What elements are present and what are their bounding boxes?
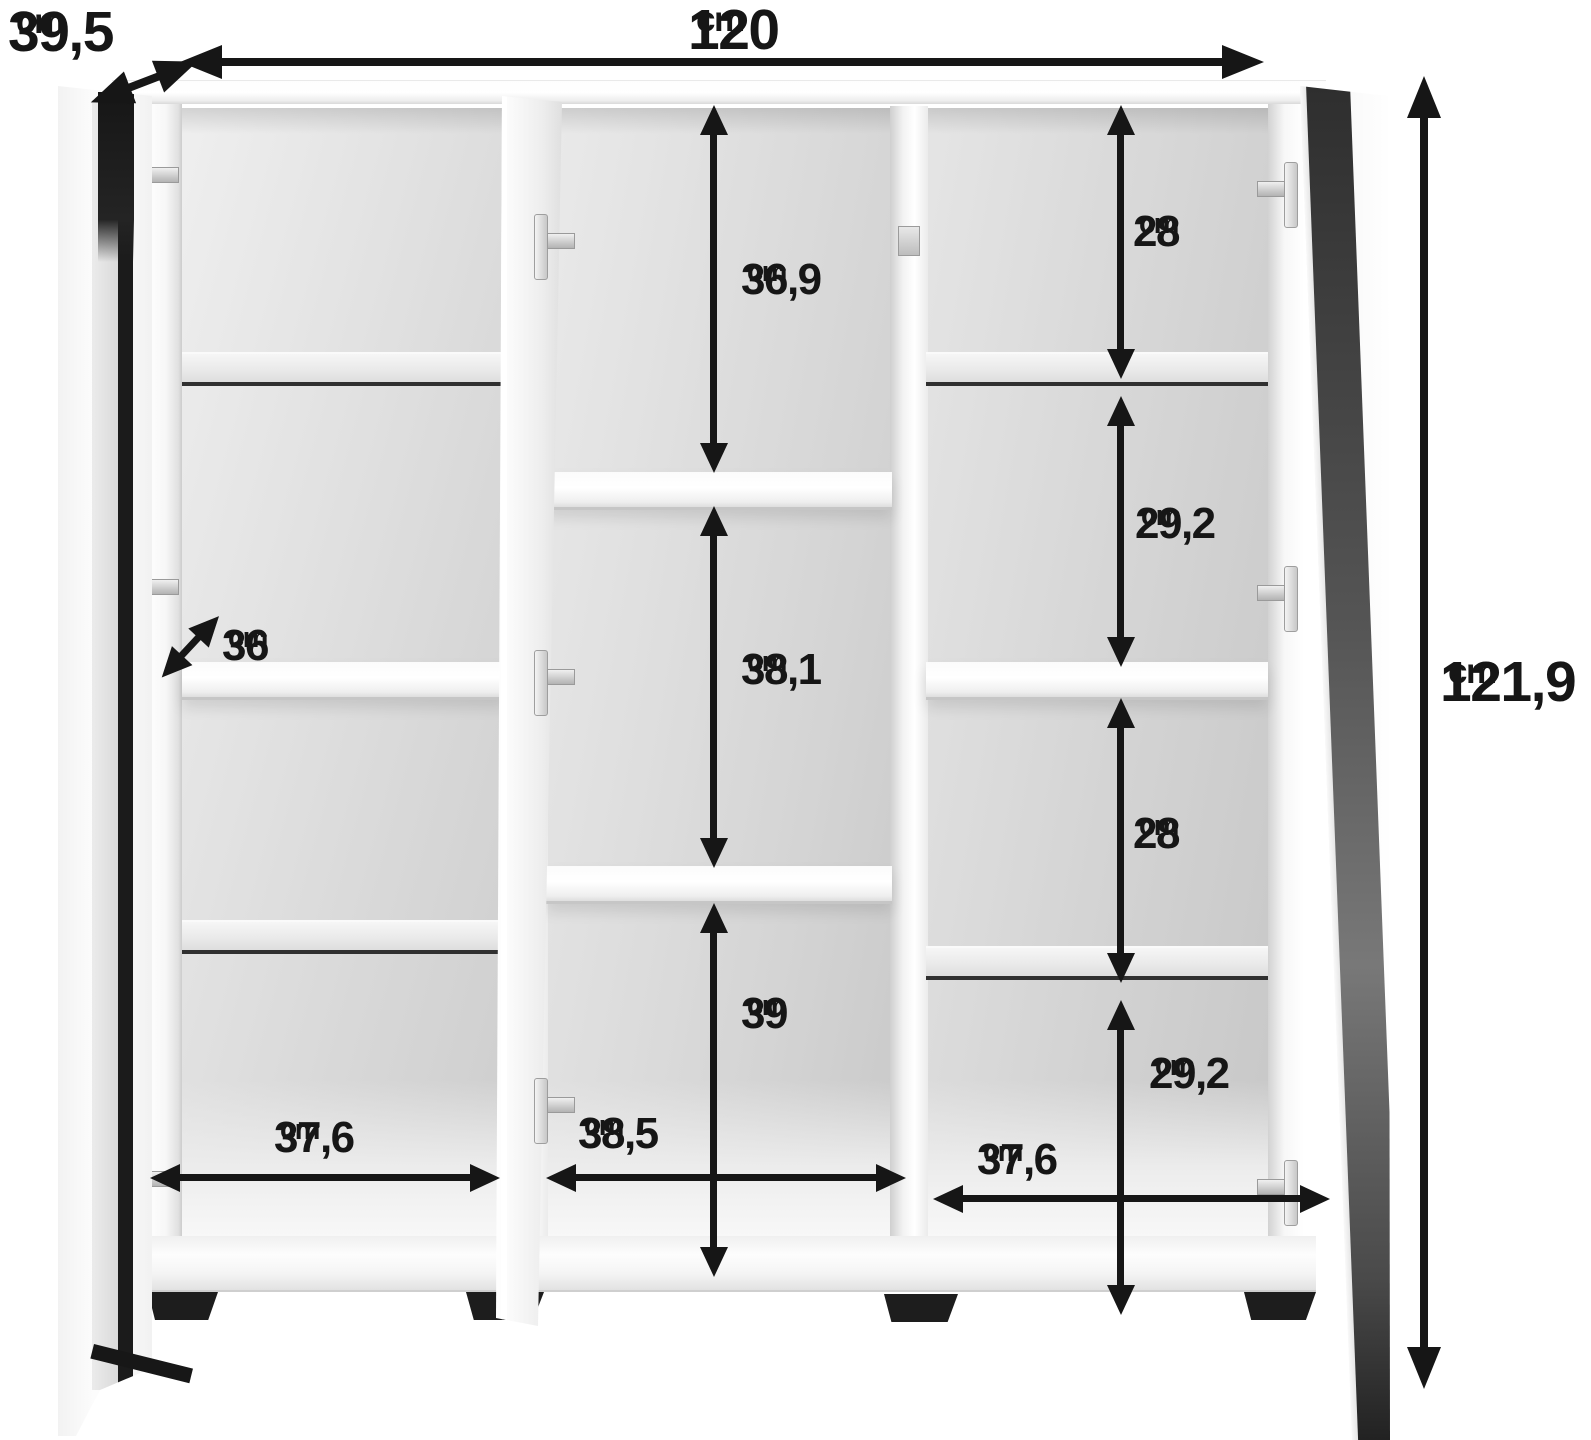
- right-compartment-1-arrow: [1117, 134, 1124, 350]
- door-stop-bracket: [898, 226, 920, 256]
- middle-top-height-unit: cm: [747, 258, 786, 287]
- width-arrow: [221, 58, 1223, 66]
- door-hinge: [1284, 566, 1298, 632]
- right-compartment-2-unit: cm: [1141, 502, 1180, 531]
- door-hinge: [534, 214, 548, 280]
- glass-shelf: [926, 352, 1268, 386]
- cabinet-right-side-panel: [1268, 104, 1304, 1266]
- right-inner-width-arrow: [962, 1195, 1301, 1202]
- depth-unit: cm: [16, 4, 64, 39]
- glass-shelf: [926, 946, 1268, 980]
- cabinet-foot: [1244, 1292, 1316, 1320]
- door-hinge: [534, 1078, 548, 1144]
- door-hinge: [1284, 1160, 1298, 1226]
- middle-inner-width-unit: cm: [584, 1112, 623, 1141]
- wood-shelf: [546, 472, 892, 510]
- left-inner-width-arrow: [179, 1174, 471, 1181]
- shelf-depth-unit: cm: [228, 624, 267, 653]
- middle-door-edge-highlight: [501, 94, 507, 1332]
- right-inner-width-unit: cm: [983, 1138, 1022, 1167]
- middle-bottom-height-unit: cm: [747, 992, 786, 1021]
- cabinet-dimension-diagram: 39,5cm 120cm 121,9cm 36cm 37,6cm 36,9cm …: [0, 0, 1591, 1440]
- right-compartment-1-unit: cm: [1139, 210, 1178, 239]
- glass-shelf: [182, 920, 506, 954]
- right-compartment-4-unit: cm: [1155, 1052, 1194, 1081]
- middle-top-height-arrow: [710, 134, 717, 444]
- wood-shelf: [546, 866, 892, 904]
- door-hinge: [1284, 162, 1298, 228]
- cabinet-bottom-panel: [148, 1236, 1316, 1292]
- cabinet-foot: [148, 1292, 218, 1320]
- left-door-glass-strip: [92, 100, 120, 1390]
- cabinet-foot: [884, 1294, 958, 1322]
- middle-middle-height-arrow: [710, 535, 717, 839]
- middle-bottom-height-arrow: [710, 932, 717, 1248]
- cabinet-top-panel: [112, 80, 1326, 104]
- left-door-dark-top: [98, 92, 134, 262]
- width-unit: cm: [696, 2, 744, 37]
- glass-shelf: [182, 352, 506, 386]
- right-compartment-4-arrow: [1117, 1029, 1124, 1286]
- right-compartment-3-unit: cm: [1139, 812, 1178, 841]
- left-door-dark-frame: [118, 96, 133, 1388]
- wood-shelf: [926, 662, 1268, 700]
- right-compartment-3-arrow: [1117, 727, 1124, 954]
- right-door-dark-glass: [1306, 84, 1402, 1440]
- door-hinge: [534, 650, 548, 716]
- middle-inner-width-arrow: [575, 1174, 877, 1181]
- height-arrow: [1420, 117, 1428, 1348]
- left-inner-width-unit: cm: [280, 1116, 319, 1145]
- height-unit: cm: [1448, 654, 1496, 689]
- middle-middle-height-unit: cm: [747, 648, 786, 677]
- cabinet-divider-right: [890, 106, 928, 1266]
- right-compartment-2-arrow: [1117, 425, 1124, 638]
